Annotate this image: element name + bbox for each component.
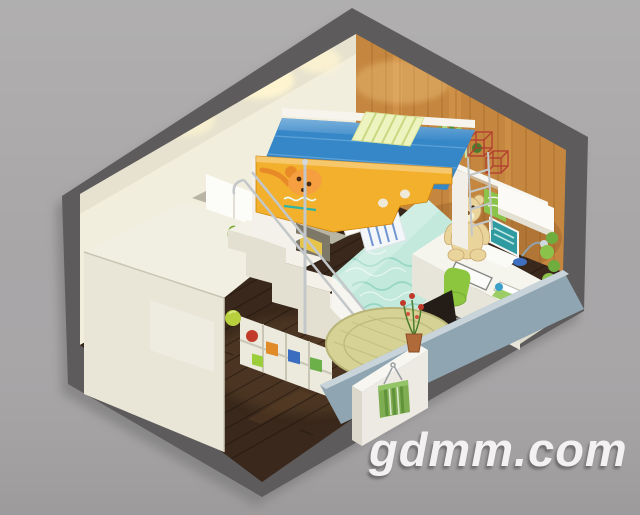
watermark: gdmm.com gdmm.com (366, 423, 628, 479)
render-stage: gdmm.com gdmm.com (0, 0, 640, 515)
guard-hole (378, 199, 388, 208)
red-flower (400, 300, 406, 306)
red-flower (409, 293, 415, 299)
flower-pot (406, 334, 422, 352)
red-flower (418, 304, 424, 310)
loft-right-post (452, 168, 468, 250)
toy-ball-lime (225, 310, 241, 326)
watermark-text: gdmm.com (368, 423, 628, 476)
room-render-canvas: gdmm.com gdmm.com (0, 0, 640, 515)
toy-ball-red (246, 330, 258, 342)
guard-hole (400, 190, 410, 199)
desk-cup (495, 283, 503, 291)
